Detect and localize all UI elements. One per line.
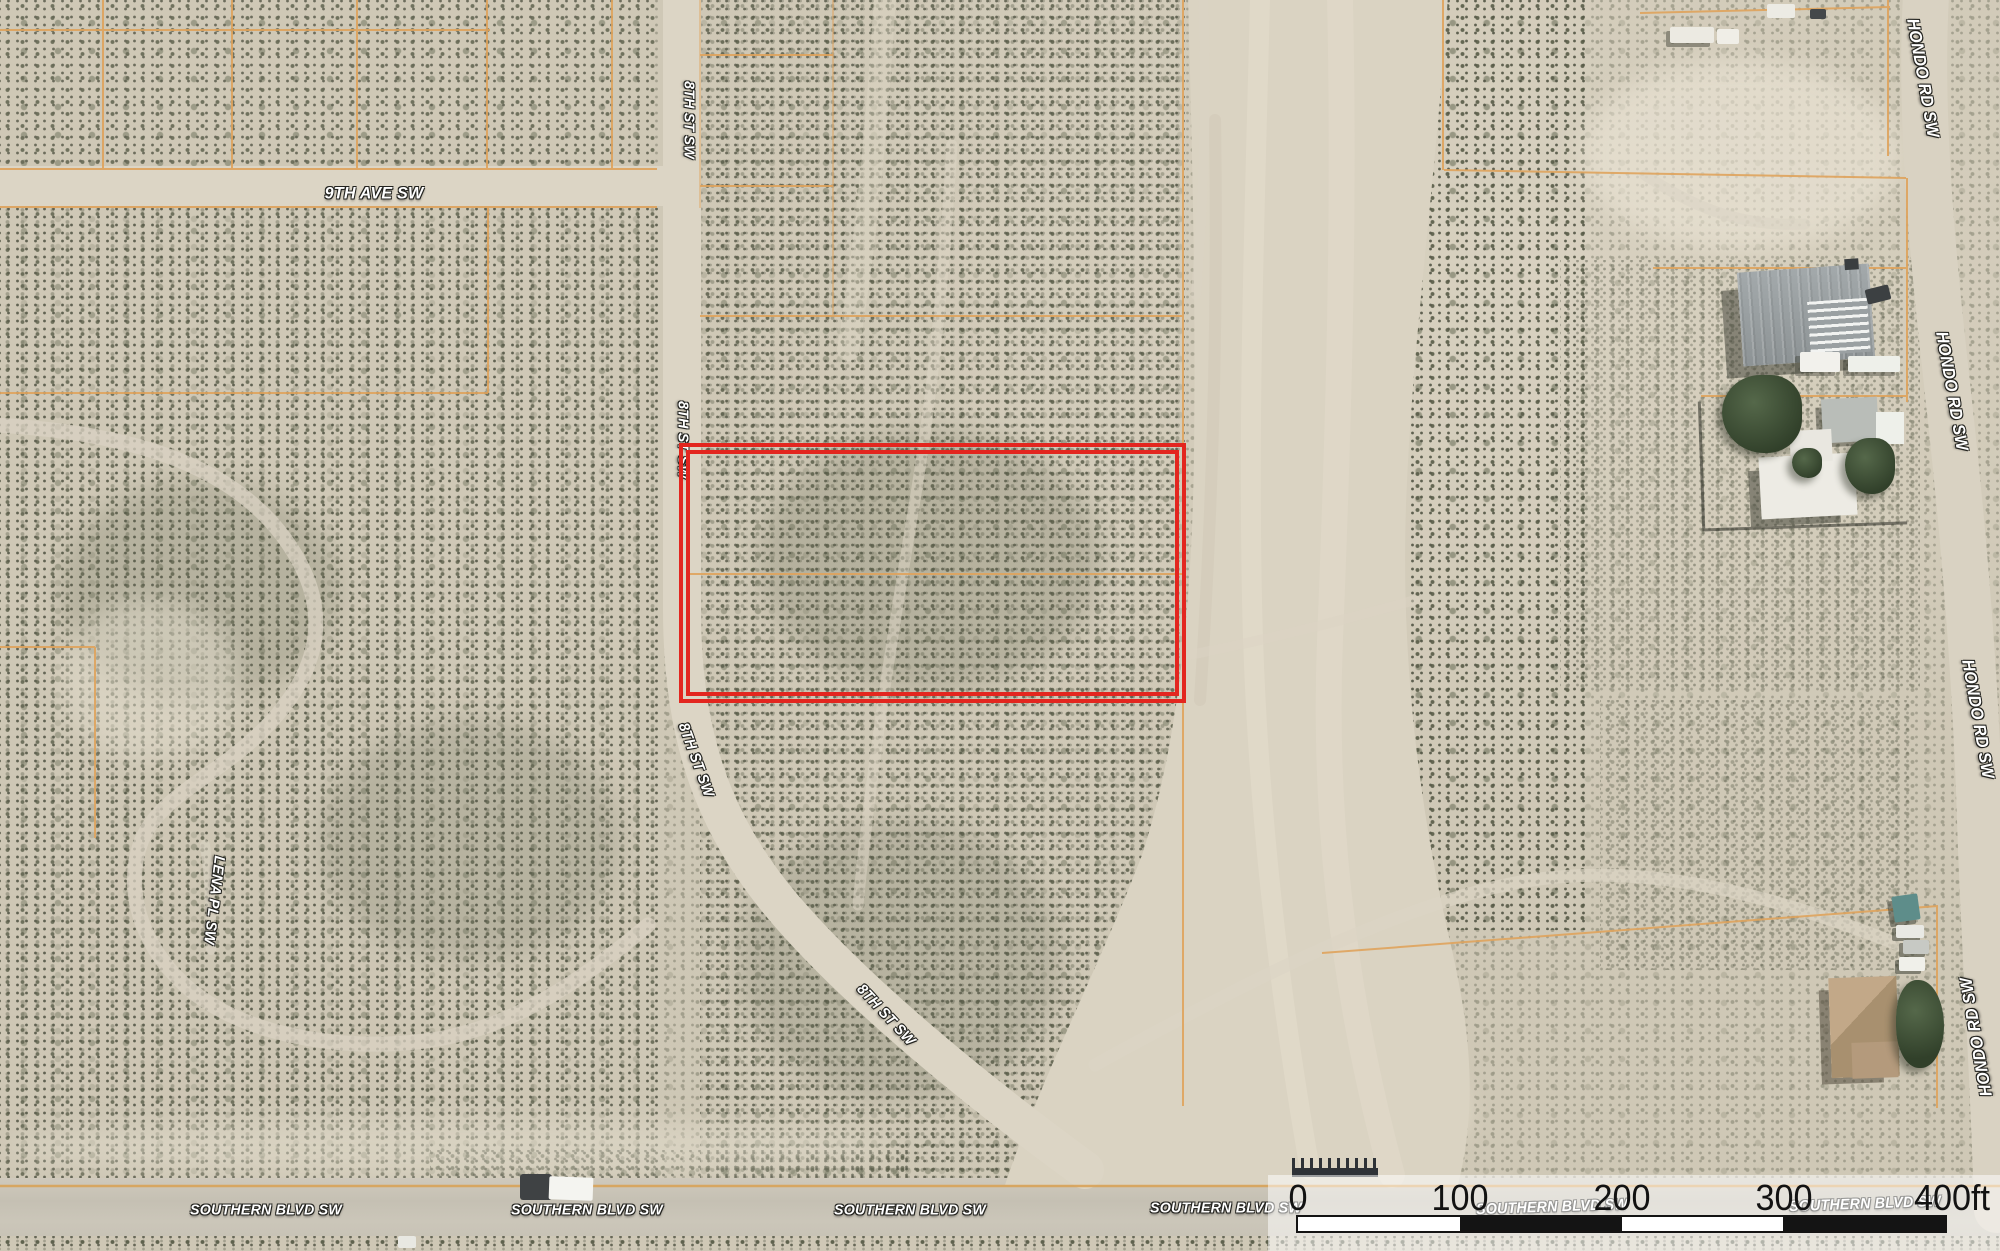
parked-car [1810,9,1826,19]
parked-car [1899,957,1925,971]
scale-segment [1783,1217,1945,1231]
rv [1891,893,1920,922]
street-label-8th-st-sw: 8TH ST SW [682,81,697,159]
shed [1800,352,1840,372]
street-label-9th-ave-sw: 9TH AVE SW [325,185,424,202]
tree [1792,448,1822,478]
scale-tick-100: 100 [1431,1180,1488,1216]
parcel-highlight[interactable] [679,443,1186,703]
rooftop-unit [1844,258,1859,270]
van [1896,925,1924,938]
tree [1845,438,1895,494]
parked-car [398,1236,416,1248]
trailer [1903,940,1929,954]
map-canvas[interactable]: 9TH AVE SW 8TH ST SW 8TH ST SW 8TH ST SW… [0,0,2000,1251]
trailer [1767,4,1795,18]
tree [1896,980,1944,1068]
shed [1848,356,1900,372]
truck-cab-shadow [520,1174,552,1200]
house-tan-wing [1851,1041,1898,1079]
scale-segment [1622,1217,1784,1231]
scale-tick-0: 0 [1288,1180,1307,1216]
parked-truck [1670,27,1714,43]
scale-tick-200: 200 [1593,1180,1650,1216]
scale-segment [1460,1217,1622,1231]
scale-tick-400ft: 400ft [1914,1180,1990,1216]
street-label-southern-blvd-sw: SOUTHERN BLVD SW [511,1203,663,1218]
street-label-southern-blvd-sw: SOUTHERN BLVD SW [834,1203,986,1218]
street-label-southern-blvd-sw: SOUTHERN BLVD SW [190,1203,342,1218]
parked-truck [1717,29,1739,44]
scale-tick-300: 300 [1755,1180,1812,1216]
truck-trailer [549,1176,594,1201]
roof-panel-stripes [1807,298,1871,356]
parcel-highlight-inner-line [686,450,1179,696]
scale-segment [1298,1217,1460,1231]
tree [1722,375,1802,453]
